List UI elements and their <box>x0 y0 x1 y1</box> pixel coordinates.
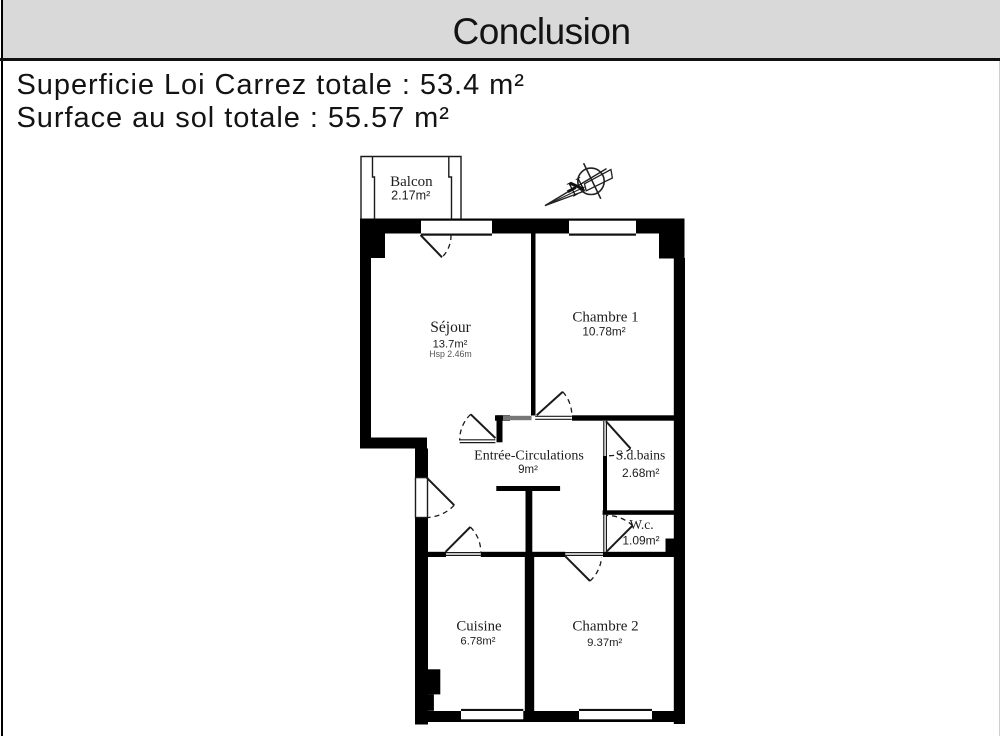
svg-text:W.c.: W.c. <box>629 517 653 532</box>
svg-text:1.09m²: 1.09m² <box>622 534 659 548</box>
svg-text:Cuisine: Cuisine <box>456 619 502 635</box>
svg-text:9m²: 9m² <box>518 464 538 476</box>
svg-text:Chambre 2: Chambre 2 <box>572 619 638 635</box>
svg-text:Entrée-Circulations: Entrée-Circulations <box>474 449 584 464</box>
svg-text:Chambre 1: Chambre 1 <box>572 309 638 325</box>
svg-text:Séjour: Séjour <box>430 319 471 336</box>
svg-text:6.78m²: 6.78m² <box>460 636 495 648</box>
svg-text:10.78m²: 10.78m² <box>582 325 625 339</box>
svg-text:9.37m²: 9.37m² <box>587 637 622 649</box>
svg-text:Hsp 2.46m: Hsp 2.46m <box>429 349 472 359</box>
svg-text:S.d.bains: S.d.bains <box>616 447 666 462</box>
svg-text:2.68m²: 2.68m² <box>622 466 659 480</box>
svg-text:2.17m²: 2.17m² <box>391 189 430 203</box>
